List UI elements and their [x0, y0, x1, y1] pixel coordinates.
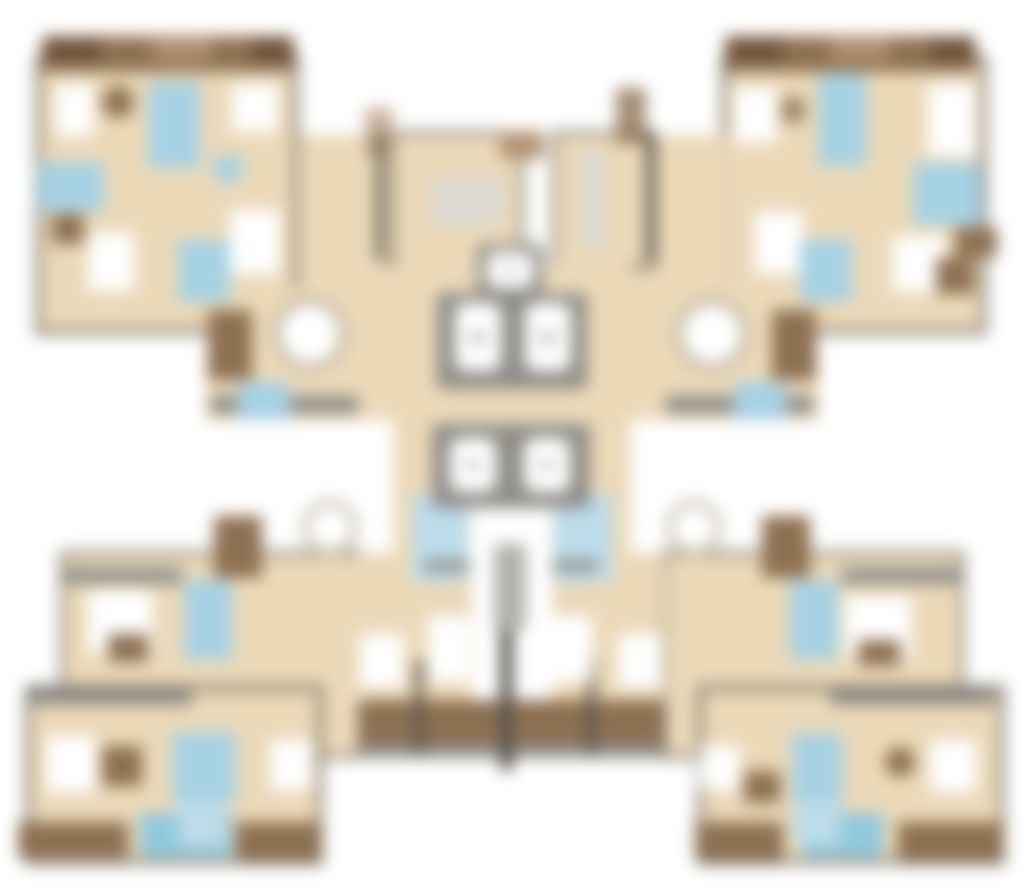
tr-terrace-light-mid — [830, 40, 890, 60]
br-intermediate-top-wall — [842, 568, 962, 584]
tr-furniture-2 — [955, 227, 997, 257]
bl-corner-bedroom-1 — [46, 736, 96, 792]
tl-desk-furniture — [102, 86, 134, 118]
bc-mullion-left — [414, 660, 424, 754]
br-corner-round-table — [885, 747, 915, 777]
tl-round-table — [277, 301, 343, 367]
stair-edge-left — [424, 560, 470, 571]
tl-bedroom-2 — [232, 84, 278, 132]
bc-left-bedroom-b — [428, 616, 470, 682]
bl-intermediate-top-wall — [62, 568, 182, 584]
bl-corner-wet-lower — [178, 800, 226, 846]
ct-corridor-strip — [580, 150, 606, 248]
tr-ext-wet-area — [734, 382, 786, 420]
tl-bathroom-1 — [148, 82, 200, 168]
tr-bedroom-2 — [928, 84, 976, 156]
tl-ext-bathroom — [178, 240, 230, 302]
floor-plan-image — [0, 0, 1024, 896]
bl-bottom-band-brown-2 — [236, 822, 320, 860]
bl-bottom-band-brown-1 — [18, 822, 128, 858]
ct-top-brown-mark — [500, 131, 544, 159]
bl-corner-top-wall — [28, 690, 192, 705]
bl-corner-furniture — [102, 746, 142, 786]
bl-balcony-block — [214, 516, 262, 578]
br-corner-bedroom-2 — [930, 740, 976, 792]
elevator-bank1-dot-left — [471, 331, 485, 345]
tl-wet-small — [214, 156, 242, 182]
br-bottom-band-brown-2 — [898, 822, 1004, 860]
br-int-furniture — [858, 640, 900, 666]
br-bottom-band-brown-1 — [695, 822, 783, 860]
br-corner-bedroom-1 — [700, 746, 740, 790]
br-corner-wet-lower — [794, 801, 840, 845]
stair-edge-right — [552, 560, 598, 571]
tr-balcony-block — [772, 310, 816, 380]
tr-bedroom-1 — [733, 88, 777, 142]
bc-right-bedroom-a — [550, 616, 592, 682]
ct-kitchen-counter — [432, 178, 504, 226]
elevator-bank1-dot-right — [541, 331, 555, 345]
elevator-top-dot — [505, 265, 515, 275]
br-balcony-block — [762, 516, 810, 578]
ct-wall-left — [376, 133, 383, 261]
tr-terrace-dark-right — [930, 38, 975, 62]
bl-round-table — [305, 503, 355, 553]
bc-right-bedroom-b — [618, 634, 662, 688]
bl-int-bathroom — [184, 580, 232, 660]
br-int-bathroom — [790, 580, 838, 660]
tr-round-table — [679, 301, 745, 367]
tl-balcony-block — [208, 310, 252, 380]
bc-left-bedroom-a — [360, 634, 404, 688]
br-corner-bathroom — [792, 733, 842, 805]
floor-plan-canvas — [0, 0, 1024, 896]
ct-wall-right — [646, 133, 653, 261]
tr-ext-bedroom — [755, 212, 803, 274]
elevator-bank2-dot-right — [541, 459, 553, 471]
br-corner-top-wall — [830, 690, 994, 705]
tr-furniture-3 — [936, 258, 974, 294]
elevator-bank2-dot-left — [467, 459, 479, 471]
tr-ext-bathroom — [800, 240, 852, 302]
tl-terrace-dark-left — [45, 38, 100, 62]
br-corner-furniture — [744, 771, 780, 803]
tr-bathroom-1 — [818, 74, 866, 166]
tr-desk-furniture — [782, 98, 804, 122]
bl-corner-bathroom — [172, 732, 236, 802]
tl-ext-bedroom — [230, 210, 280, 274]
ct-deco-right — [616, 88, 646, 144]
tl-furniture-2 — [52, 214, 84, 244]
tl-bedroom-1 — [56, 84, 94, 136]
br-round-table — [669, 503, 719, 553]
tl-bedroom-3 — [88, 233, 134, 291]
tl-terrace-dark-right — [252, 38, 294, 62]
tl-ext-wet-area — [238, 382, 290, 420]
tl-terrace-light-mid — [152, 40, 212, 60]
tl-bathroom-2 — [38, 162, 104, 212]
tr-bathroom-2 — [913, 163, 981, 225]
stair-flight — [494, 544, 526, 630]
tr-terrace-dark-left — [728, 38, 783, 62]
bl-corner-bedroom-2 — [270, 740, 312, 790]
bl-int-furniture — [108, 634, 148, 662]
